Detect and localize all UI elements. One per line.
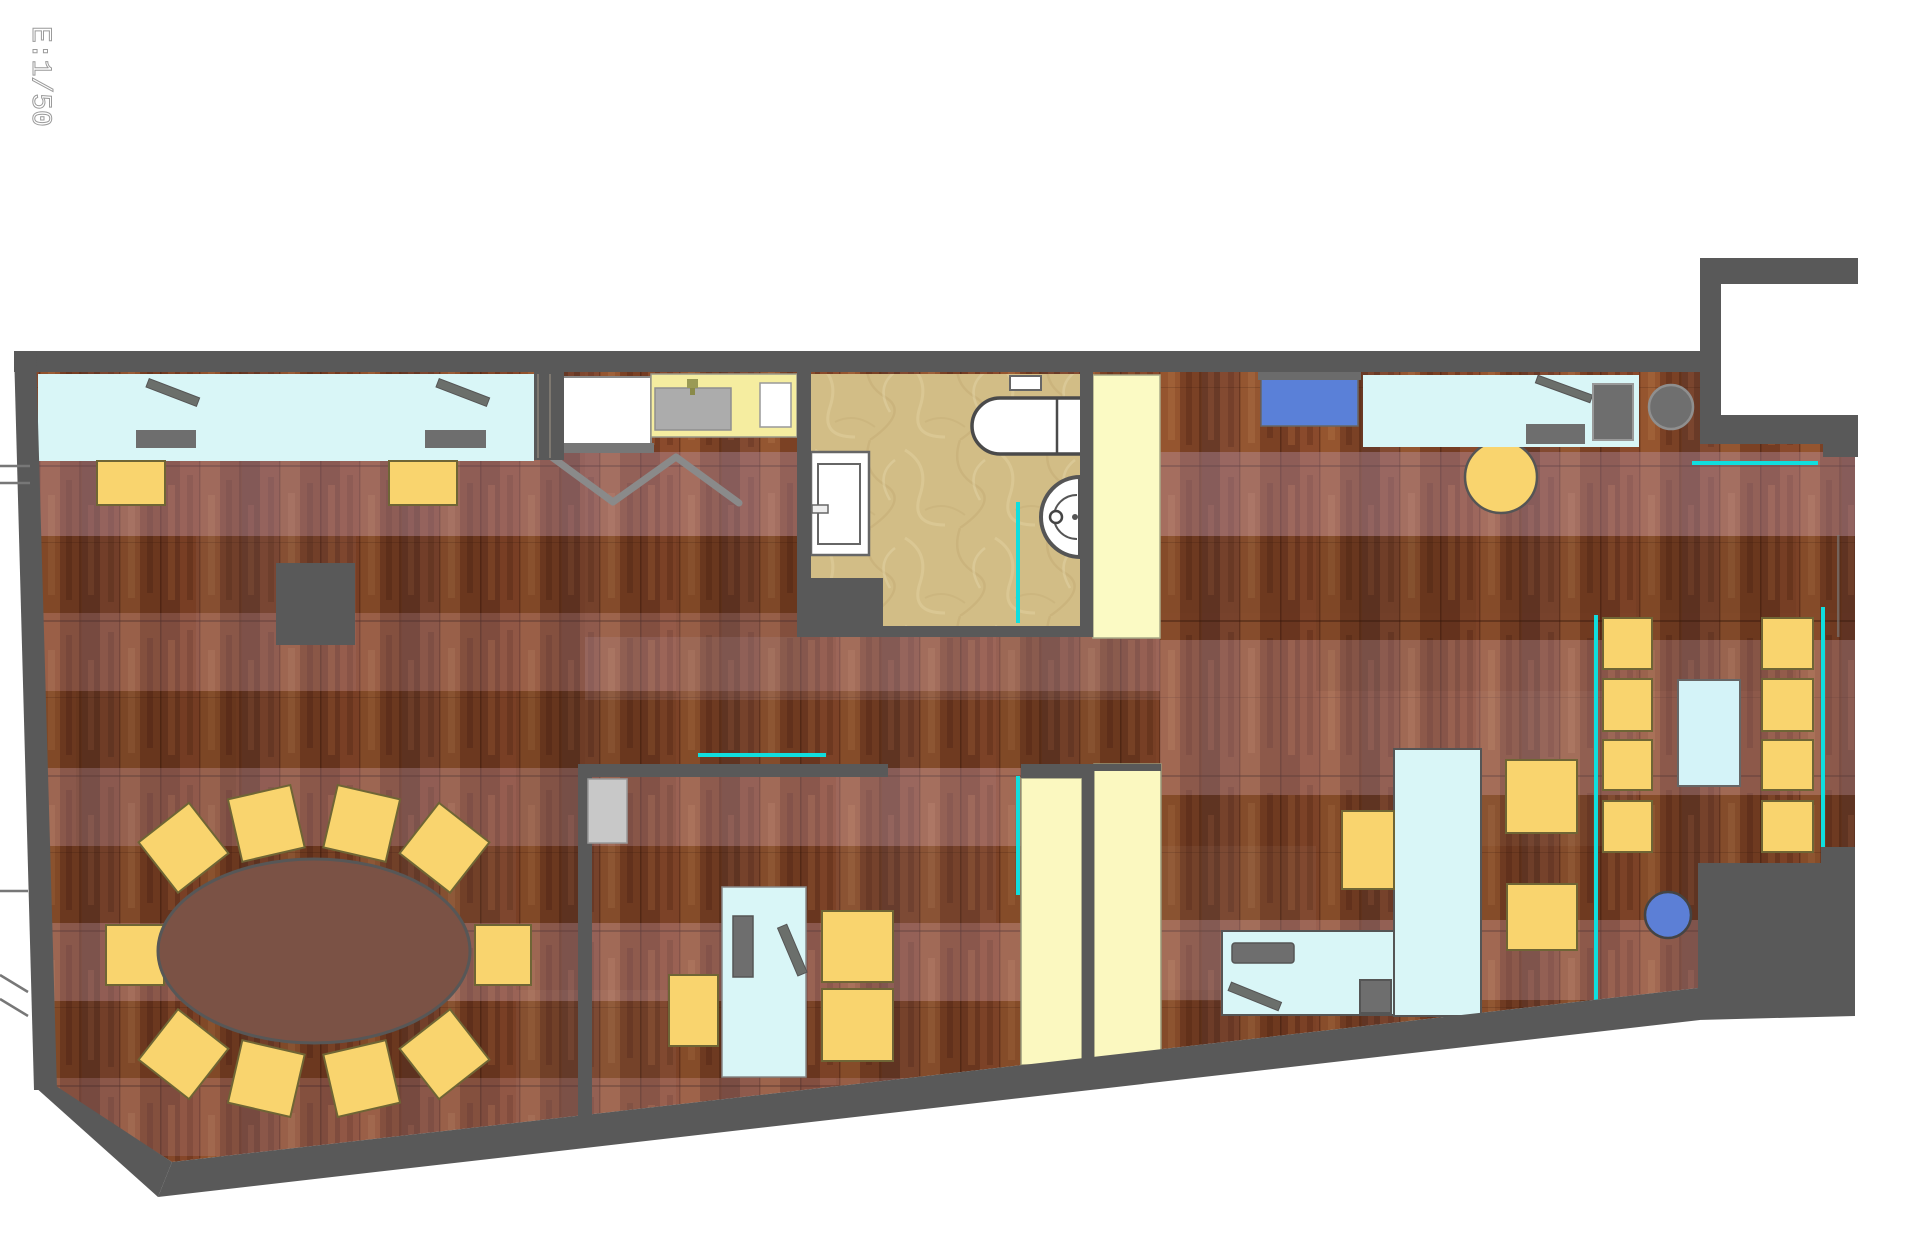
svg-text:E:1/50: E:1/50 bbox=[24, 26, 55, 127]
